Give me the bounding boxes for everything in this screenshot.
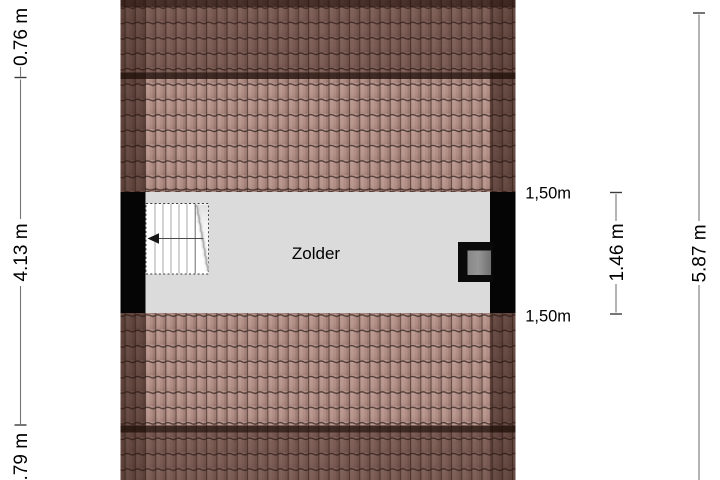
svg-text:Zolder: Zolder	[292, 244, 341, 263]
svg-text:1,50m: 1,50m	[525, 185, 571, 203]
svg-text:1,50m: 1,50m	[525, 308, 571, 326]
svg-text:0.79 m: 0.79 m	[11, 433, 32, 480]
svg-text:5.87 m: 5.87 m	[690, 224, 711, 282]
svg-text:0.76 m: 0.76 m	[11, 8, 32, 66]
svg-text:4.13 m: 4.13 m	[11, 223, 32, 281]
svg-text:1.46 m: 1.46 m	[607, 223, 628, 281]
